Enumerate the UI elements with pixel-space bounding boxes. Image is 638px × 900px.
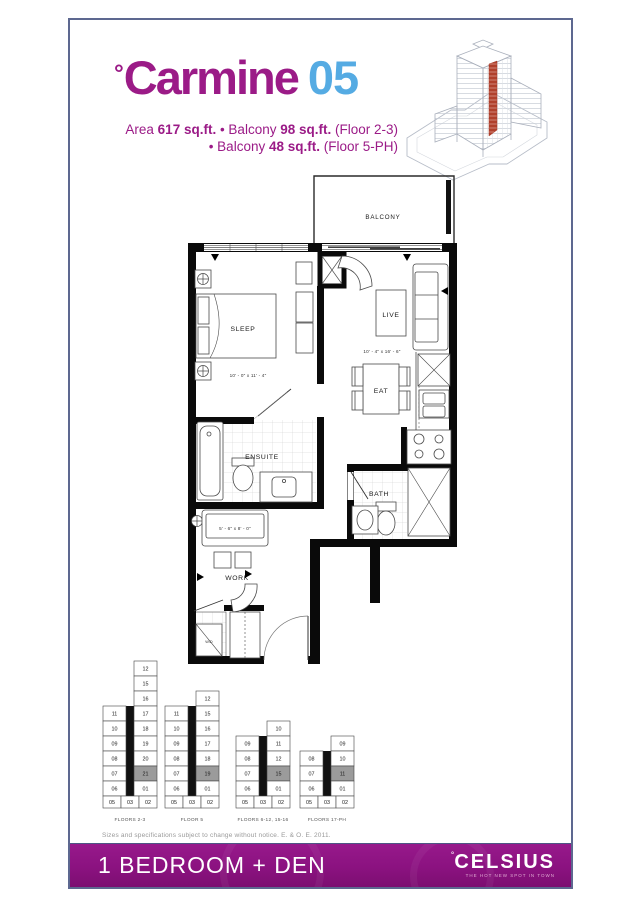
dim-live: 10' - 4" x 16' - 6"	[363, 349, 400, 354]
svg-text:11: 11	[174, 712, 180, 718]
footer-bar: 1 BEDROOM + DEN °CELSIUS the hot new spo…	[70, 843, 571, 887]
svg-text:03: 03	[324, 800, 330, 806]
svg-text:07: 07	[309, 772, 315, 778]
fine-print: Sizes and specifications subject to chan…	[102, 832, 331, 839]
keyplan-floors-2-3: 121516171819202101111009080706050302 FLO…	[102, 660, 158, 823]
svg-text:03: 03	[127, 800, 133, 806]
title-number: 05	[308, 51, 358, 104]
svg-text:01: 01	[143, 787, 149, 793]
svg-text:06: 06	[112, 787, 118, 793]
svg-text:08: 08	[112, 757, 118, 763]
svg-text:02: 02	[207, 800, 213, 806]
keyplan-floor-5: 12151617181901111009080706050302 FLOOR 5	[164, 690, 220, 823]
brochure-page: °Carmine05 Area 617 sq.ft. • Balcony 98 …	[0, 0, 638, 900]
svg-text:09: 09	[245, 742, 251, 748]
svg-text:01: 01	[205, 787, 211, 793]
keyplan-svg: 101112150109080706050302	[235, 720, 291, 810]
celsius-logo: °CELSIUS the hot new spot in town	[451, 851, 555, 879]
shaft-column	[320, 254, 344, 286]
keyplan-floors-6-16: 101112150109080706050302 FLOORS 6-12, 15…	[235, 720, 291, 823]
svg-text:02: 02	[278, 800, 284, 806]
svg-text:01: 01	[340, 787, 346, 793]
svg-text:11: 11	[276, 742, 282, 748]
room-label-eat: EAT	[374, 388, 389, 395]
area-specs: Area 617 sq.ft. • Balcony 98 sq.ft. (Flo…	[100, 121, 398, 155]
den-furniture	[196, 510, 268, 658]
svg-text:02: 02	[145, 800, 151, 806]
keyplan-label: FLOORS 2-3	[102, 818, 158, 823]
svg-text:07: 07	[174, 772, 180, 778]
dim-sleep: 10' - 0" x 11' - 4"	[230, 373, 267, 378]
svg-text:08: 08	[245, 757, 251, 763]
svg-text:16: 16	[205, 727, 211, 733]
room-label-sleep: SLEEP	[231, 326, 256, 333]
svg-text:08: 08	[174, 757, 180, 763]
room-label-live: LIVE	[382, 312, 399, 319]
room-label-bath: BATH	[369, 491, 389, 498]
svg-text:03: 03	[189, 800, 195, 806]
svg-text:11: 11	[112, 712, 118, 718]
dim-work: 5' - 6" x 8' - 0"	[219, 526, 251, 531]
svg-text:12: 12	[205, 697, 211, 703]
page-title: °Carmine05	[114, 50, 358, 105]
room-label-wd: W/D	[205, 640, 213, 644]
windows	[204, 244, 442, 251]
svg-text:08: 08	[309, 757, 315, 763]
svg-text:19: 19	[143, 742, 149, 748]
svg-text:06: 06	[174, 787, 180, 793]
svg-text:18: 18	[205, 757, 211, 763]
svg-text:09: 09	[340, 742, 346, 748]
svg-text:15: 15	[143, 682, 149, 688]
svg-text:12: 12	[143, 667, 149, 673]
svg-text:07: 07	[245, 772, 251, 778]
svg-text:19: 19	[205, 772, 211, 778]
kitchen-fixtures	[407, 352, 451, 464]
svg-text:10: 10	[276, 727, 282, 733]
svg-text:20: 20	[143, 757, 149, 763]
keyplan-label: FLOORS 17-PH	[299, 818, 355, 823]
room-label-ensuite: ENSUITE	[245, 454, 279, 461]
svg-text:09: 09	[112, 742, 118, 748]
spec-line-2: • Balcony 48 sq.ft. (Floor 5-PH)	[100, 138, 398, 155]
svg-text:17: 17	[205, 742, 211, 748]
spec-line-1: Area 617 sq.ft. • Balcony 98 sq.ft. (Flo…	[100, 121, 398, 138]
room-label-balcony: BALCONY	[365, 214, 400, 221]
svg-text:10: 10	[174, 727, 180, 733]
brand-tagline: the hot new spot in town	[451, 874, 555, 879]
keyplan-svg: 12151617181901111009080706050302	[164, 690, 220, 810]
svg-text:15: 15	[205, 712, 211, 718]
svg-text:06: 06	[309, 787, 315, 793]
svg-text:21: 21	[143, 772, 149, 778]
degree-symbol: °	[114, 60, 124, 87]
building-rendering	[395, 26, 567, 184]
floor-plan: BALCONY	[152, 167, 472, 672]
svg-text:05: 05	[306, 800, 312, 806]
svg-text:16: 16	[143, 697, 149, 703]
balcony-outline	[314, 176, 454, 245]
keyplan-label: FLOOR 5	[164, 818, 220, 823]
svg-text:05: 05	[242, 800, 248, 806]
keyplan-svg: 09101101080706050302	[299, 735, 355, 810]
svg-text:01: 01	[276, 787, 282, 793]
svg-text:18: 18	[143, 727, 149, 733]
bedroom-furniture	[195, 262, 313, 380]
svg-text:11: 11	[340, 772, 346, 778]
keyplan-floors-17-ph: 09101101080706050302 FLOORS 17-PH	[299, 735, 355, 823]
keyplan-svg: 121516171819202101111009080706050302	[102, 660, 158, 810]
svg-text:10: 10	[112, 727, 118, 733]
svg-text:17: 17	[143, 712, 149, 718]
svg-text:07: 07	[112, 772, 118, 778]
svg-text:02: 02	[342, 800, 348, 806]
svg-text:03: 03	[260, 800, 266, 806]
svg-text:06: 06	[245, 787, 251, 793]
keyplan-label: FLOORS 6-12, 15-16	[235, 818, 291, 823]
unit-type-label: 1 BEDROOM + DEN	[98, 852, 326, 879]
svg-text:09: 09	[174, 742, 180, 748]
svg-text:12: 12	[276, 757, 282, 763]
svg-text:05: 05	[109, 800, 115, 806]
title-name: Carmine	[124, 51, 298, 104]
svg-text:10: 10	[340, 757, 346, 763]
page-frame: °Carmine05 Area 617 sq.ft. • Balcony 98 …	[68, 18, 573, 889]
svg-text:05: 05	[171, 800, 177, 806]
svg-text:15: 15	[276, 772, 282, 778]
